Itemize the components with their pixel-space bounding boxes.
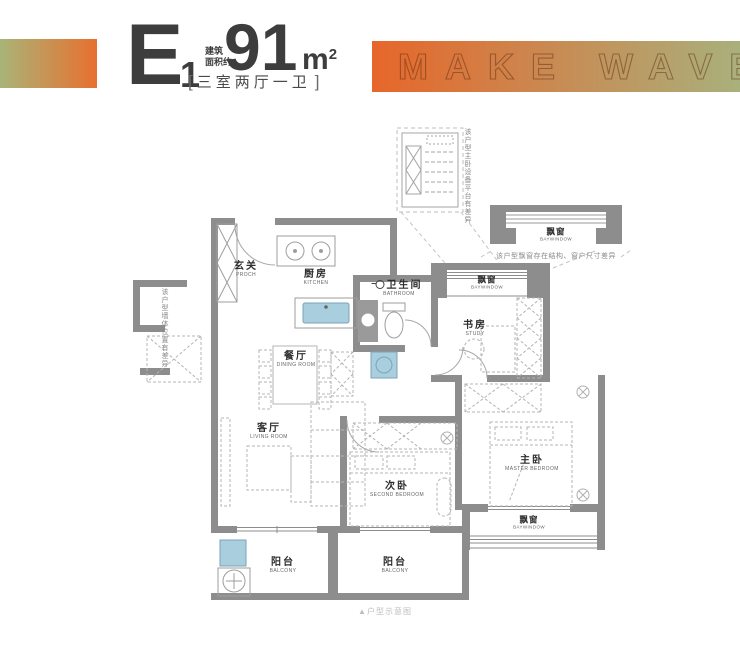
kitchen-cn: 厨房	[304, 269, 329, 280]
balcony-left-cn: 阳台	[270, 557, 297, 568]
room-label-balcony-right: 阳台 BALCONY	[382, 557, 409, 575]
baywindow-detail-en: BAYWINDOW	[540, 237, 572, 243]
sofa	[311, 402, 365, 506]
brand-banner: MAKE WAVE	[372, 41, 740, 92]
baywindow-master-cn: 飘窗	[513, 516, 545, 525]
area-unit-sup: 2	[329, 46, 337, 63]
study-wardrobe	[517, 298, 541, 378]
second-bedroom-cn: 次卧	[370, 481, 424, 492]
unit-code: E	[126, 18, 183, 92]
note-left-wing: 该户型墙体位置有差异	[159, 288, 169, 388]
window-section-detail	[397, 128, 463, 212]
master-bedroom-cn: 主卧	[505, 455, 559, 466]
room-label-second-bedroom: 次卧 SECOND BEDROOM	[370, 481, 424, 499]
bathroom-cn: 卫生间	[376, 280, 423, 291]
hall-cabinet	[331, 352, 353, 396]
baywindow-detail-cn: 飘窗	[540, 228, 572, 237]
bathroom-en: BATHROOM	[376, 291, 423, 298]
coffee-table	[247, 446, 291, 490]
kitchen-en: KITCHEN	[304, 280, 329, 287]
room-label-master-bedroom: 主卧 MASTER BEDROOM	[505, 455, 559, 473]
second-bedroom-en: SECOND BEDROOM	[370, 492, 424, 499]
layout-descriptor: [ 三室两厅一卫 ]	[184, 71, 323, 92]
washer-corridor	[371, 352, 397, 378]
room-label-balcony-left: 阳台 BALCONY	[270, 557, 297, 575]
second-bedroom-bench	[437, 478, 451, 516]
toilet-bowl	[385, 312, 403, 338]
baywindow-study-cn: 飘窗	[471, 276, 503, 285]
dining-cn: 餐厅	[277, 351, 316, 362]
washer-balcony	[220, 540, 246, 566]
room-label-baywindow-detail: 飘窗 BAYWINDOW	[540, 228, 572, 243]
study-en: STUDY	[463, 331, 487, 338]
room-label-baywindow-master: 飘窗 BAYWINDOW	[513, 516, 545, 531]
bracket-close: ]	[315, 72, 320, 92]
plan-caption: ▲户型示意图	[315, 606, 455, 617]
floorplan-page: MAKE WAVE E 1 建筑 面积约 91 m2 [ 三室两厅一卫 ]	[0, 0, 740, 652]
bracket-open: [	[188, 72, 193, 92]
living-en: LIVING ROOM	[250, 434, 288, 441]
balcony-right-en: BALCONY	[382, 568, 409, 575]
note-window-section: 该户型主卧设备平台有差异	[462, 128, 472, 238]
room-label-bathroom: 卫生间 BATHROOM	[376, 280, 423, 298]
dining-en: DINING ROOM	[277, 362, 316, 369]
tv-cabinet	[221, 418, 230, 506]
room-label-porch: 玄关 PROCH	[234, 261, 258, 279]
living-cn: 客厅	[250, 423, 288, 434]
room-label-baywindow-study: 飘窗 BAYWINDOW	[471, 276, 503, 291]
porch-cn: 玄关	[234, 261, 258, 272]
note-baywindow: 该户型飘窗存在结构、窗户尺寸差异	[481, 251, 631, 261]
porch-en: PROCH	[234, 272, 258, 279]
baywindow-study-en: BAYWINDOW	[471, 285, 503, 291]
banner-watermark-text: MAKE WAVE	[372, 46, 740, 88]
baywindow-master-en: BAYWINDOW	[513, 525, 545, 531]
balcony-right-cn: 阳台	[382, 557, 409, 568]
toilet-tank	[383, 303, 405, 311]
room-label-kitchen: 厨房 KITCHEN	[304, 269, 329, 287]
study-cn: 书房	[463, 320, 487, 331]
master-bedroom-en: MASTER BEDROOM	[505, 466, 559, 473]
room-label-dining: 餐厅 DINING ROOM	[277, 351, 316, 369]
floorplan: 玄关 PROCH 厨房 KITCHEN 卫生间 BATHROOM 书房 STUD…	[125, 120, 640, 620]
bathroom-cn-text: 卫生间	[387, 280, 423, 291]
master-wardrobe	[465, 384, 541, 412]
area-value: 91	[224, 16, 297, 78]
basin-icon	[376, 280, 385, 289]
room-label-study: 书房 STUDY	[463, 320, 487, 338]
gradient-bar	[0, 39, 97, 88]
floorplan-drawing	[125, 120, 640, 620]
layout-text: 三室两厅一卫	[197, 71, 311, 92]
balcony-left-en: BALCONY	[270, 568, 297, 575]
room-label-living: 客厅 LIVING ROOM	[250, 423, 288, 441]
